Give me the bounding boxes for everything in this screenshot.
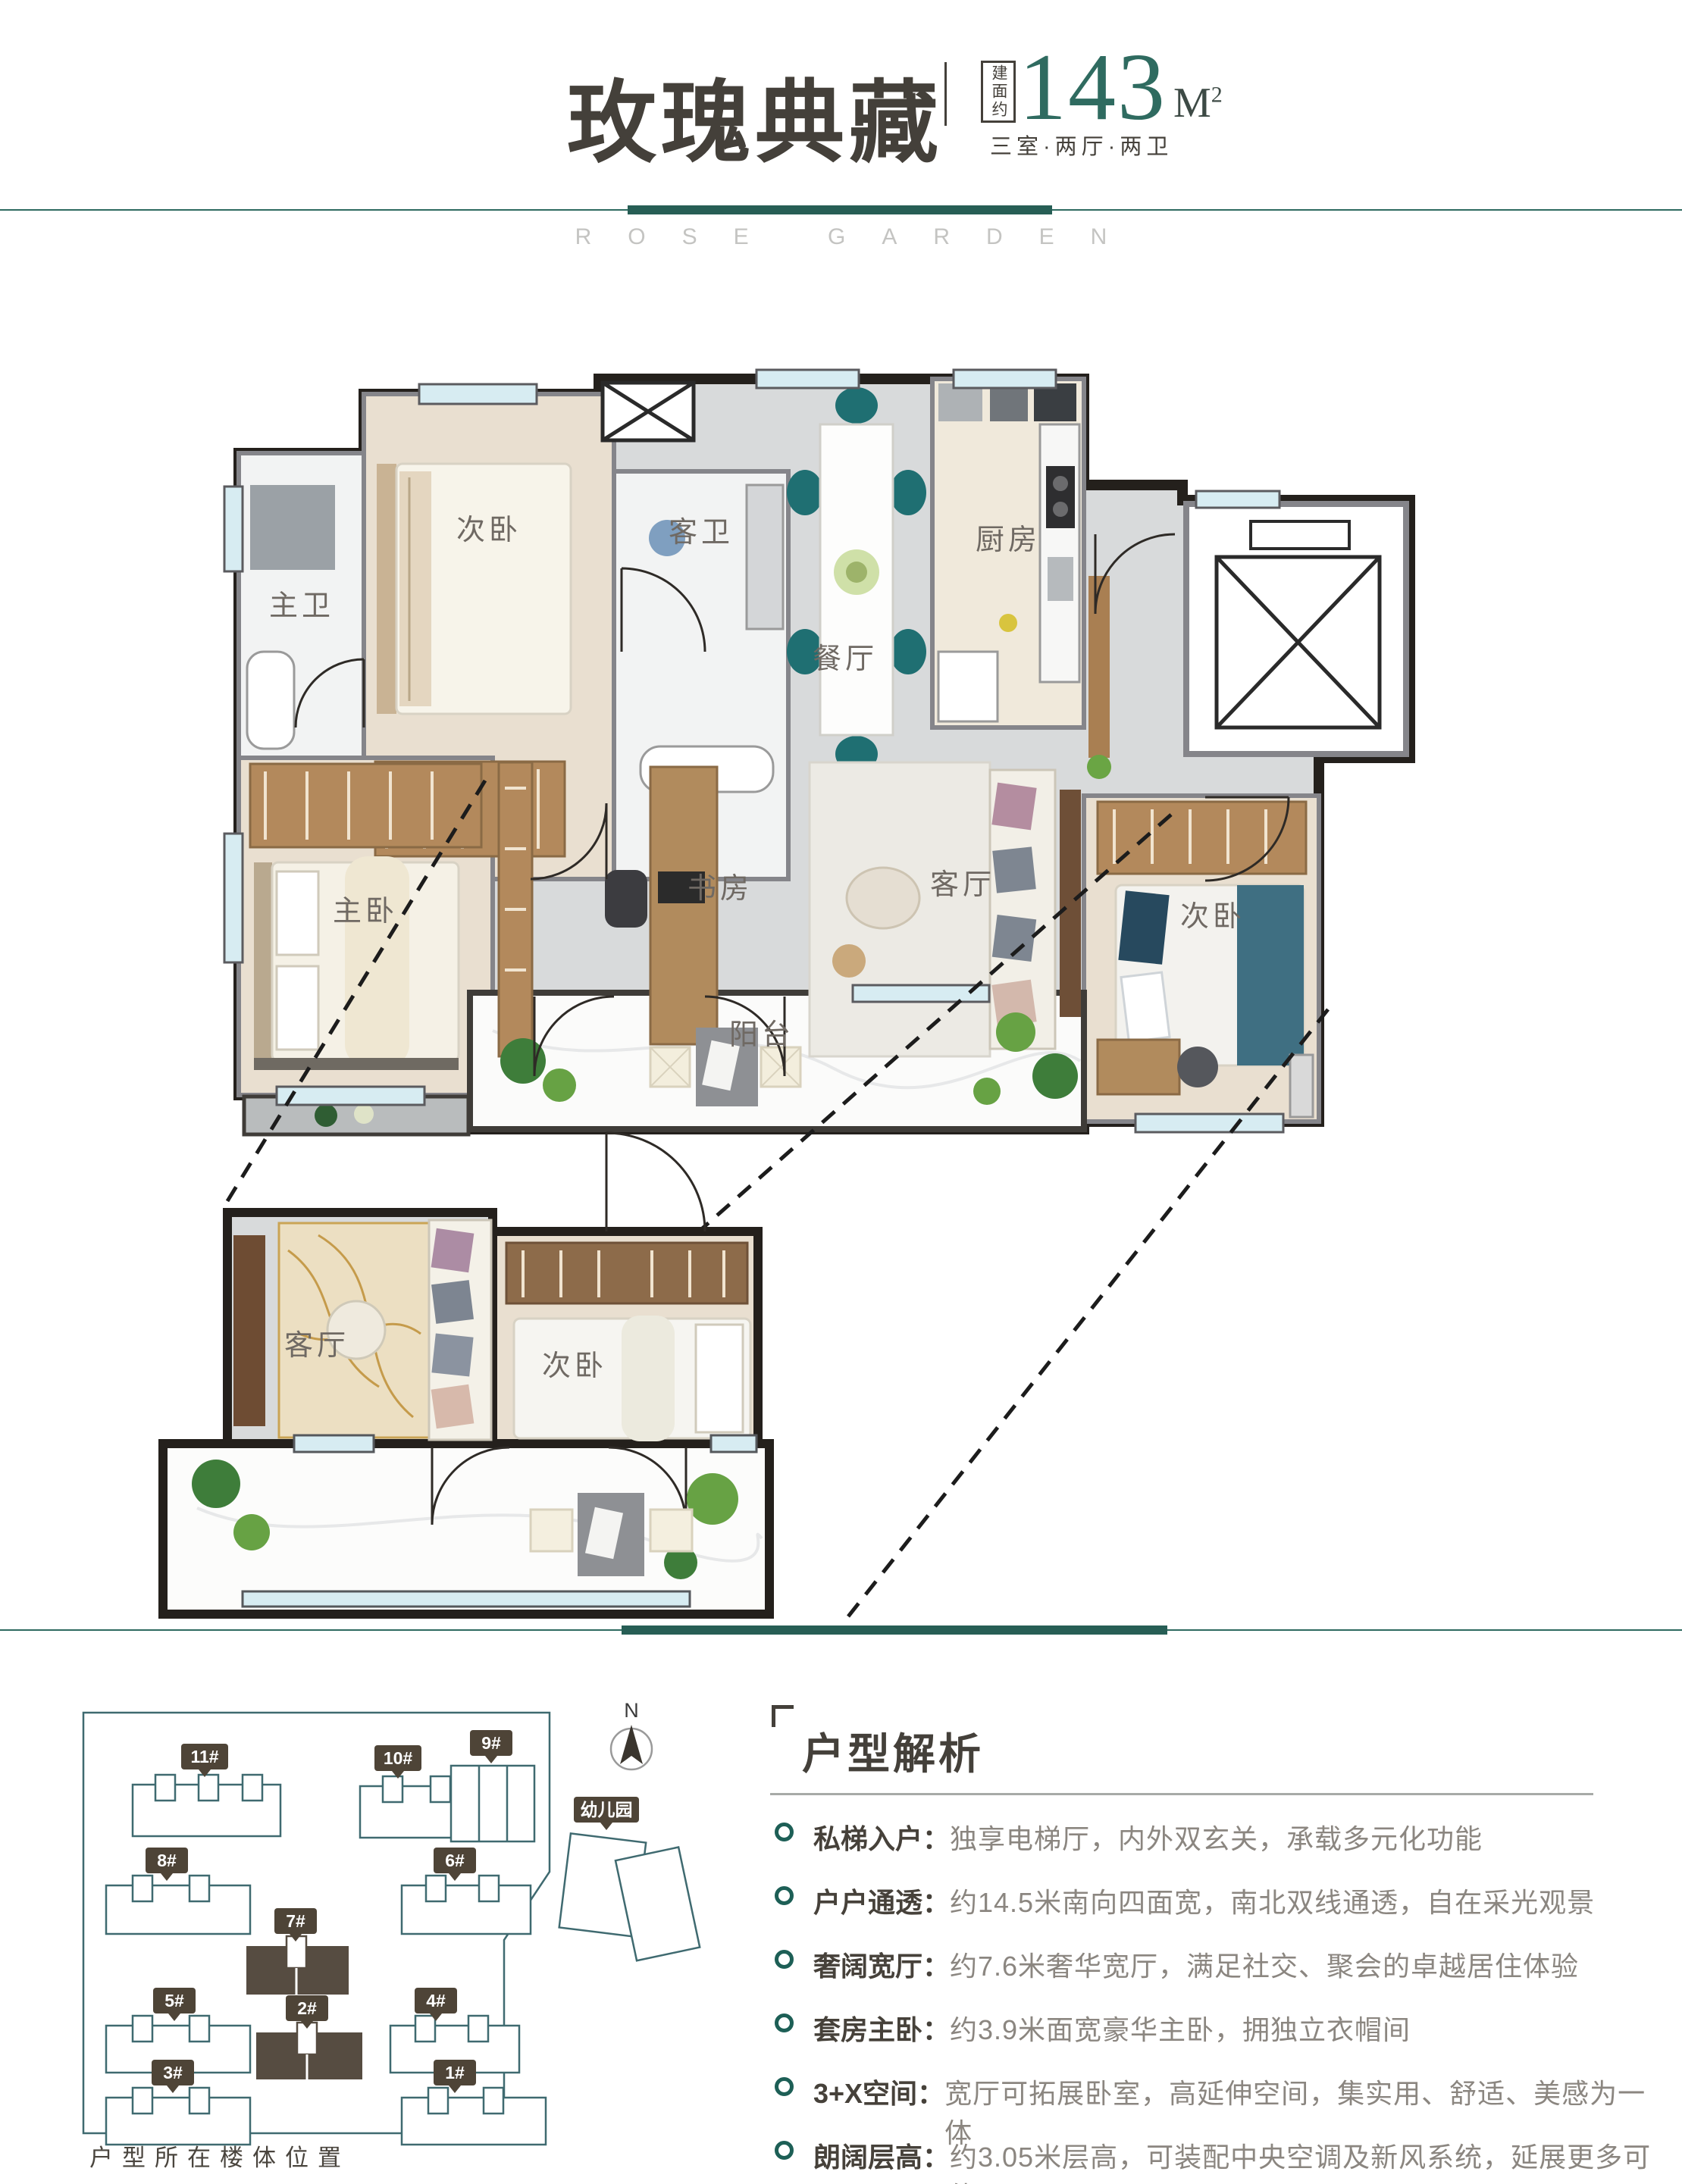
guest-bath-counter — [747, 485, 783, 629]
label-dining: 餐厅 — [813, 643, 878, 675]
building-8 — [106, 1876, 250, 1934]
bullet-ring-icon — [775, 1950, 794, 1969]
analysis-item-2: 户户通透： 约14.5米南向四面宽，南北双线通透，自在采光观景 — [775, 1881, 1654, 1920]
section-rule-accent — [622, 1625, 1167, 1635]
bullet-ring-icon — [775, 2141, 794, 2160]
title-divider — [944, 62, 947, 126]
building-6 — [402, 1876, 531, 1934]
analysis-term: 私梯入户： — [813, 1817, 950, 1857]
wardrobe-right — [1098, 802, 1306, 874]
tag-3: 3# — [163, 2063, 183, 2082]
brochure-page: 玫瑰典藏 建面约 143 M2 三室·两厅·两卫 ROSE GARDEN — [0, 0, 1682, 2184]
bullet-ring-icon — [775, 2077, 794, 2096]
analysis-title: 户型解析 — [802, 1720, 984, 1782]
building-9 — [451, 1766, 534, 1841]
label-detail-living: 客厅 — [284, 1330, 349, 1362]
area-value: 143 — [1019, 33, 1167, 142]
floor-plan-svg: 主卫 次卧 客卫 餐厅 厨房 主卧 书房 客厅 次卧 阳台 — [0, 326, 1682, 1629]
tag-7: 7# — [286, 1911, 305, 1931]
header-rule-accent — [628, 205, 1052, 214]
shower — [250, 485, 335, 570]
wardrobe-master — [250, 764, 481, 847]
analysis-item-3: 奢阔宽厅： 约7.6米奢华宽厅，满足社交、聚会的卓越居住体验 — [775, 1945, 1654, 1984]
analysis-desc: 独享电梯厅，内外双玄关，承载多元化功能 — [950, 1817, 1483, 1857]
bullet-ring-icon — [775, 1823, 794, 1841]
analysis-desc: 约3.9米面宽豪华主卧，拥独立衣帽间 — [950, 2008, 1411, 2048]
analysis-desc: 约3.05米层高，可装配中央空调及新风系统，延展更多可能 — [950, 2136, 1654, 2184]
analysis-term: 奢阔宽厅： — [813, 1945, 950, 1984]
layout-spec: 三室·两厅·两卫 — [990, 129, 1173, 161]
elevator-shaft — [1217, 557, 1380, 727]
building-11 — [133, 1775, 280, 1836]
analysis-item-6: 朗阔层高： 约3.05米层高，可装配中央空调及新风系统，延展更多可能 — [775, 2136, 1654, 2184]
rose-garden-watermark: ROSE GARDEN — [0, 224, 1682, 250]
detail-floor-plan: 客厅 次卧 — [163, 1133, 769, 1614]
label-guest-bath: 客卫 — [669, 517, 734, 549]
analysis-desc: 约14.5米南向四面宽，南北双线通透，自在采光观景 — [950, 1881, 1595, 1920]
bay-flowers — [354, 1104, 374, 1124]
window-bench — [1290, 1055, 1313, 1117]
analysis-item-4: 套房主卧： 约3.9米面宽豪华主卧，拥独立衣帽间 — [775, 2008, 1654, 2048]
bathtub — [247, 652, 294, 749]
elevator-panel — [1251, 521, 1349, 549]
compass-icon: N — [611, 1699, 652, 1769]
building-2 — [256, 2023, 362, 2079]
corner-bracket-icon — [772, 1705, 794, 1727]
bed-master — [254, 856, 459, 1070]
analysis-term: 户户通透： — [813, 1881, 950, 1920]
label-living: 客厅 — [930, 869, 995, 901]
detail-door-arc — [606, 1133, 705, 1231]
entry-cabinet — [1088, 576, 1110, 758]
living-set — [810, 762, 1081, 1056]
tag-4: 4# — [426, 1991, 446, 2010]
label-master-bedroom: 主卧 — [333, 896, 398, 928]
bullet-ring-icon — [775, 2013, 794, 2032]
analysis-term: 3+X空间： — [813, 2072, 944, 2111]
tag-2: 2# — [297, 1998, 317, 2018]
analysis-item-1: 私梯入户： 独享电梯厅，内外双玄关，承载多元化功能 — [775, 1817, 1654, 1857]
building-3 — [106, 2088, 250, 2145]
detail-wardrobe — [506, 1243, 747, 1303]
analysis-underline — [770, 1793, 1593, 1795]
bed-top — [377, 464, 571, 714]
label-balcony: 阳台 — [729, 1019, 794, 1051]
detail-sofa — [429, 1220, 491, 1440]
label-master-bath: 主卫 — [269, 590, 334, 622]
duct-shaft — [603, 383, 694, 440]
page-title: 玫瑰典藏 — [567, 50, 943, 180]
label-bedroom-top: 次卧 — [456, 515, 522, 546]
building-7 — [246, 1936, 349, 1995]
label-bedroom-right: 次卧 — [1180, 901, 1245, 933]
tag-9: 9# — [481, 1733, 501, 1753]
site-plan-caption: 户型所在楼体位置 — [89, 2139, 350, 2173]
area-label-box: 建面约 — [981, 61, 1016, 123]
detail-tv-cabinet — [233, 1235, 265, 1426]
tag-8: 8# — [157, 1851, 177, 1870]
label-study: 书房 — [688, 873, 753, 905]
analysis-term: 朗阔层高： — [813, 2136, 950, 2175]
compass-n-label: N — [624, 1699, 639, 1722]
label-detail-bedroom: 次卧 — [542, 1350, 607, 1382]
tag-11: 11# — [190, 1747, 218, 1766]
chair-right — [1177, 1047, 1218, 1087]
analysis-term: 套房主卧： — [813, 2008, 950, 2048]
entry-plant — [1087, 755, 1111, 779]
desk-right — [1098, 1040, 1179, 1094]
bullet-ring-icon — [775, 1886, 794, 1905]
tag-5: 5# — [164, 1991, 184, 2010]
bay-plant — [315, 1104, 337, 1127]
building-1 — [402, 2088, 546, 2145]
site-plan-svg: N 11# 10# 9# 8# 6# 7# 5# 4# 2# 3# 1# 幼儿园 — [61, 1690, 803, 2175]
tag-kindergarten: 幼儿园 — [581, 1800, 633, 1819]
analysis-desc: 约7.6米奢华宽厅，满足社交、聚会的卓越居住体验 — [950, 1945, 1579, 1984]
kindergarten-building — [559, 1833, 700, 1960]
main-floor-plan: 主卫 次卧 客卫 餐厅 厨房 主卧 书房 客厅 次卧 阳台 — [224, 370, 1410, 1134]
tag-10: 10# — [384, 1748, 413, 1768]
tag-1: 1# — [445, 2063, 465, 2082]
tag-6: 6# — [445, 1851, 465, 1870]
area-unit: M2 — [1173, 79, 1223, 127]
label-kitchen: 厨房 — [976, 524, 1041, 556]
